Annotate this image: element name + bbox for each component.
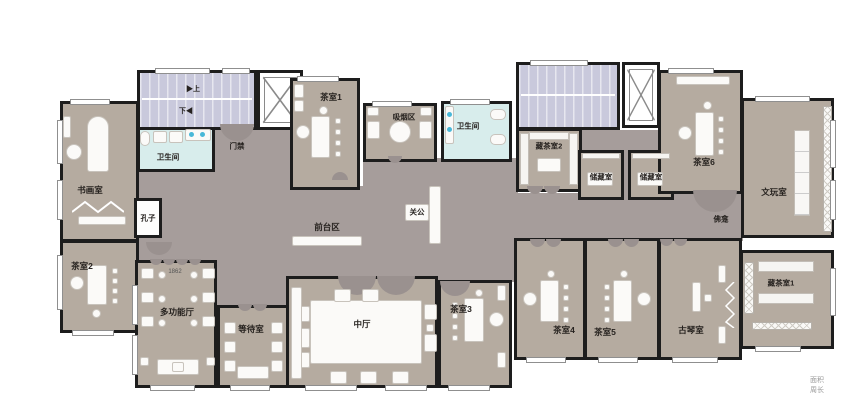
armchair: [70, 276, 84, 290]
seat: [563, 295, 569, 301]
stool: [158, 295, 166, 303]
seat: [112, 288, 118, 294]
armchair: [419, 121, 432, 139]
side-table: [420, 107, 432, 116]
side-table: [426, 324, 434, 332]
seat: [604, 317, 610, 323]
window: [70, 99, 110, 105]
shelving: [582, 153, 620, 159]
stool: [620, 270, 628, 278]
window: [830, 120, 836, 168]
toilet: [490, 134, 506, 145]
window: [672, 357, 718, 363]
chair: [334, 289, 351, 302]
chair: [141, 316, 154, 327]
room-label: 茶室3: [450, 303, 472, 315]
window: [132, 335, 138, 375]
room-label: 卫生间: [457, 121, 480, 132]
window: [132, 285, 138, 325]
stool: [703, 101, 712, 110]
stair-east-landing: [521, 94, 615, 96]
window: [530, 60, 588, 66]
stair-up-label: ▶上: [186, 84, 200, 94]
window: [755, 96, 810, 102]
window: [72, 330, 114, 336]
chair: [424, 304, 437, 320]
desk: [87, 116, 109, 172]
room-label: 茶室1: [320, 91, 342, 103]
shelving: [632, 153, 670, 159]
window: [222, 68, 250, 74]
seat: [604, 306, 610, 312]
stool: [190, 319, 198, 327]
room-label: 茶室6: [693, 156, 715, 168]
armchair: [367, 121, 380, 139]
shelving: [529, 132, 569, 140]
seat: [563, 306, 569, 312]
window: [57, 120, 63, 164]
stool: [547, 270, 555, 278]
guangong-label: 关公: [410, 207, 425, 218]
wall-cabinet: [718, 265, 726, 283]
seat: [718, 116, 724, 122]
stair-east[interactable]: [516, 62, 620, 130]
wall-cabinet: [676, 76, 730, 85]
seat: [604, 284, 610, 290]
shrine-label: 佛龛: [714, 214, 729, 225]
stool: [319, 106, 328, 115]
seat: [335, 151, 341, 157]
seat: [718, 127, 724, 133]
access-control-label: 门禁: [230, 141, 245, 152]
seat: [335, 129, 341, 135]
corridor-waiting-stub: [217, 262, 291, 307]
faucet: [447, 112, 452, 117]
armchair: [296, 125, 310, 139]
tea-chest: [537, 158, 561, 172]
stool: [66, 144, 82, 160]
room-label: 文玩室: [761, 186, 787, 198]
window: [372, 101, 412, 107]
art-table: [78, 216, 126, 225]
room-antique[interactable]: [741, 98, 834, 238]
window: [230, 385, 270, 391]
window: [155, 68, 210, 74]
room-label: 吸烟区: [393, 112, 416, 123]
room-label: 中厅: [353, 318, 370, 330]
long-cabinet: [291, 287, 302, 379]
seat: [112, 278, 118, 284]
shelving: [758, 261, 814, 272]
window: [305, 385, 357, 391]
room-label: 书画室: [77, 184, 103, 196]
wall-cabinet: [497, 352, 506, 368]
shelving: [758, 293, 814, 304]
stall: [153, 131, 167, 143]
tea-table: [613, 280, 632, 322]
seat: [335, 140, 341, 146]
chair: [362, 289, 379, 302]
room-label: 茶室5: [594, 326, 616, 338]
corridor-under-bath: [137, 170, 215, 190]
reception-label: 前台区: [314, 221, 340, 233]
room-label: 多功能厅: [160, 306, 194, 318]
wall-cabinet: [718, 326, 726, 344]
stool: [92, 309, 101, 318]
window: [668, 68, 714, 74]
sideboard: [237, 366, 269, 379]
stool: [158, 271, 166, 279]
confucius-label: 孔子: [141, 213, 156, 224]
seat: [604, 295, 610, 301]
seat: [563, 317, 569, 323]
room-label: 卫生间: [157, 152, 180, 163]
window: [57, 255, 63, 310]
chair: [202, 268, 215, 279]
chair: [202, 316, 215, 327]
display-cabinet: [744, 262, 754, 314]
banquet-table: [310, 300, 422, 364]
seat: [452, 335, 458, 341]
dimension-label: 1862: [168, 269, 181, 275]
faucet: [447, 127, 452, 132]
window: [450, 99, 490, 105]
display-shelf: [794, 130, 810, 216]
stall: [169, 131, 183, 143]
room-label: 茶室2: [71, 260, 93, 272]
chair: [224, 322, 236, 334]
faucet: [200, 132, 205, 137]
toilet: [490, 109, 506, 120]
stair-west[interactable]: [137, 70, 257, 130]
window: [830, 180, 836, 220]
window: [526, 357, 566, 363]
window: [448, 385, 490, 391]
corner-cabinet: [206, 357, 215, 366]
seat: [335, 118, 341, 124]
chair: [141, 268, 154, 279]
seat: [452, 324, 458, 330]
chair: [424, 334, 437, 352]
wall-cabinet: [63, 116, 71, 138]
window: [755, 346, 801, 352]
guangong-altar-table: [429, 186, 441, 244]
window: [57, 180, 63, 220]
room-label: 储藏室: [640, 172, 663, 183]
stair-down-label: 下◀: [179, 106, 193, 116]
seat: [112, 298, 118, 304]
shelving: [569, 133, 578, 185]
seat: [563, 284, 569, 290]
room-label: 古琴室: [678, 324, 704, 336]
elevator-east[interactable]: [622, 62, 660, 128]
footer-perimeter-label: 周长: [810, 385, 824, 395]
faucet: [189, 132, 194, 137]
room-label: 茶室4: [553, 324, 575, 336]
easel-zigzag: [72, 200, 124, 214]
seat: [718, 149, 724, 155]
chair: [360, 371, 377, 384]
window: [385, 385, 427, 391]
window: [598, 357, 638, 363]
room-label: 藏茶室1: [768, 278, 795, 289]
corner-cabinet: [140, 357, 149, 366]
chair: [271, 322, 283, 334]
floor-plan: 书画室 茶室2 卫生间 多功能厅 等待室 茶室1 吸烟区 卫生间 中厅 茶室3 …: [0, 0, 850, 407]
chair: [271, 341, 283, 353]
stool: [190, 271, 198, 279]
tea-table: [311, 116, 330, 158]
stool: [158, 319, 166, 327]
armchair: [678, 126, 692, 140]
shelving: [520, 133, 529, 185]
seat: [112, 268, 118, 274]
chair: [141, 292, 154, 303]
wall-cabinet: [497, 285, 506, 301]
stool: [190, 295, 198, 303]
sideboard-inner: [172, 362, 184, 372]
footer-area-label: 面积: [810, 375, 824, 385]
wall-cabinet: [294, 84, 304, 98]
display-cabinet: [752, 322, 812, 330]
room-label: 藏茶室2: [536, 141, 563, 152]
chair: [392, 371, 409, 384]
chair: [224, 360, 236, 372]
armchair: [489, 312, 504, 327]
round-table: [389, 121, 411, 143]
wall-cabinet: [294, 100, 304, 112]
tea-table: [695, 112, 714, 156]
chair: [224, 341, 236, 353]
room-label: 等待室: [238, 323, 264, 335]
room-label: 储藏室: [590, 172, 613, 183]
window: [830, 268, 836, 316]
chair: [330, 371, 347, 384]
stool: [475, 289, 483, 297]
window: [297, 76, 339, 82]
folding-screen: [724, 282, 736, 328]
guqin-table: [692, 282, 701, 312]
stair-west-landing: [142, 98, 252, 100]
chair: [202, 292, 215, 303]
armchair: [637, 292, 651, 306]
elevator-x-icon: [625, 65, 657, 125]
seat: [718, 138, 724, 144]
stool: [704, 294, 712, 302]
window: [150, 385, 195, 391]
armchair: [523, 292, 537, 306]
chair: [271, 360, 283, 372]
tea-table: [540, 280, 559, 322]
side-table: [367, 107, 379, 116]
reception-counter: [292, 236, 362, 246]
toilet: [140, 131, 150, 146]
